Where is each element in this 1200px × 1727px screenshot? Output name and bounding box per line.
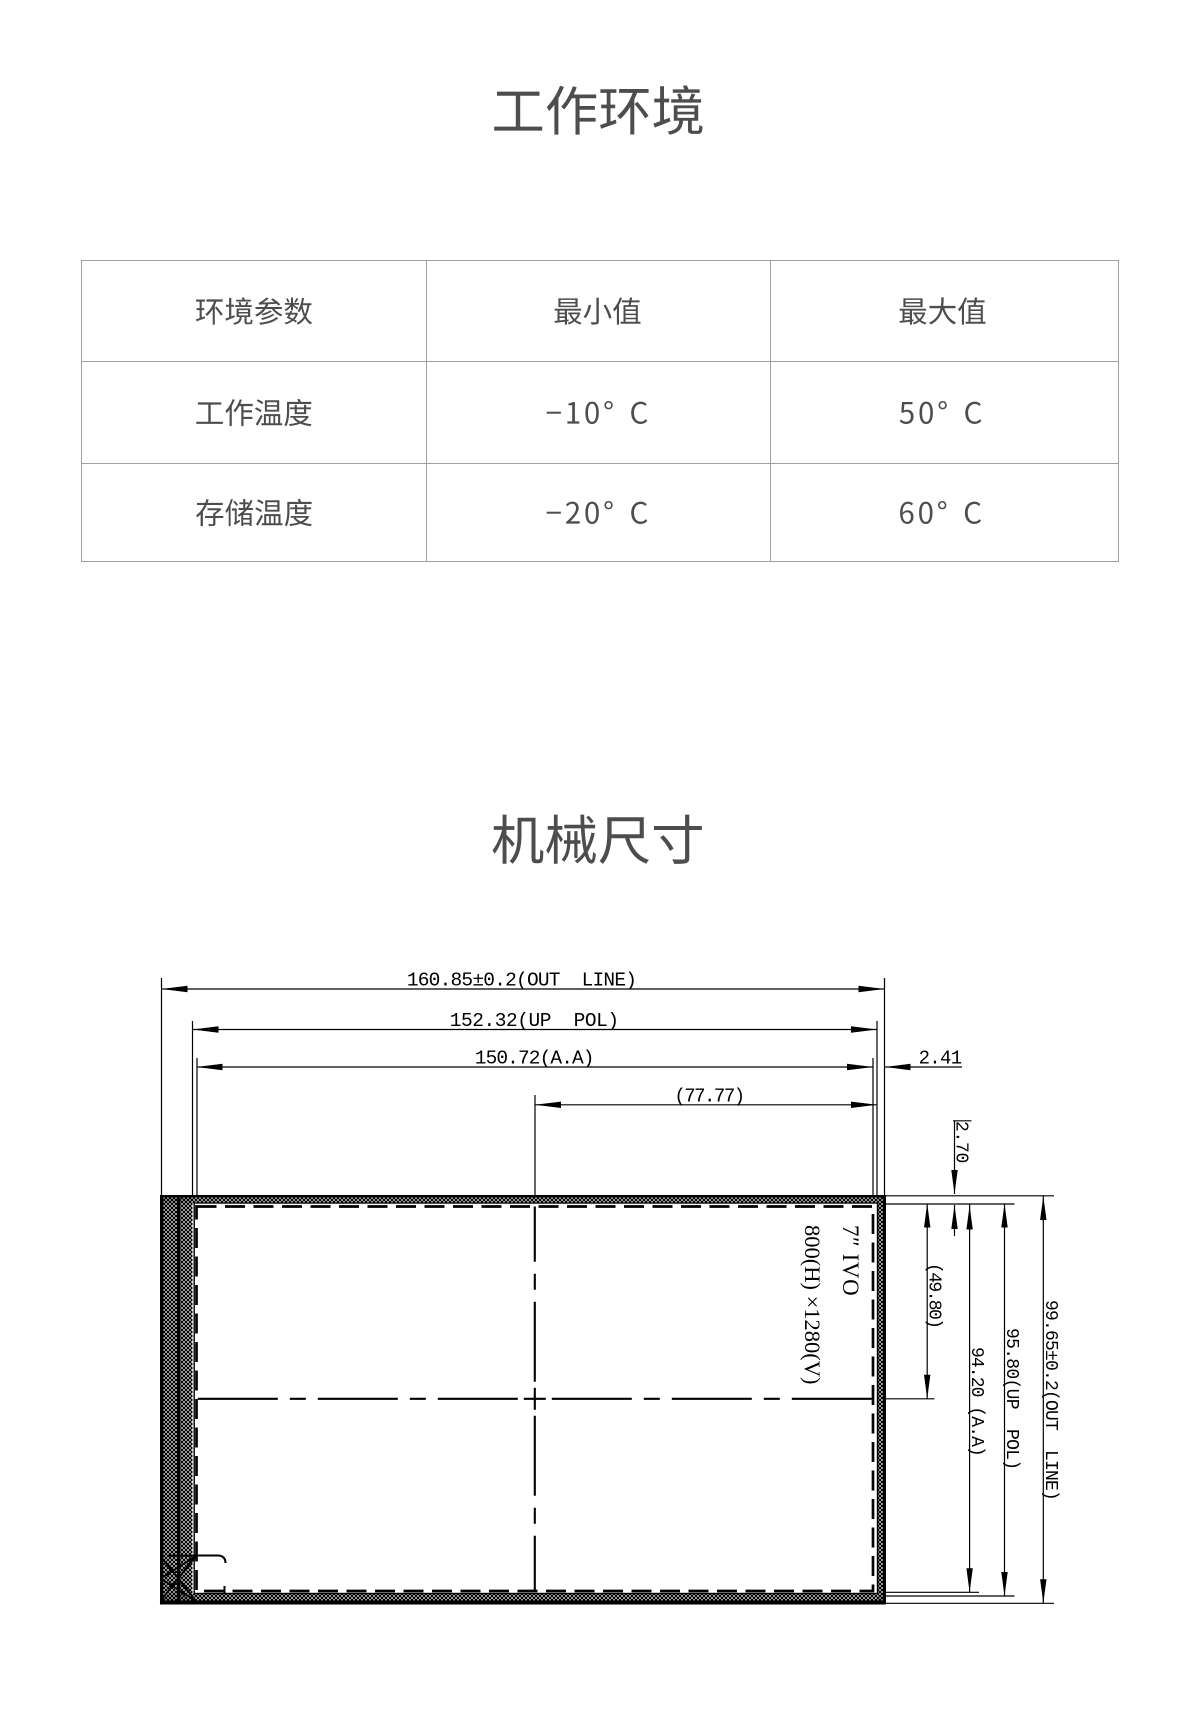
svg-text:150.72(A.A): 150.72(A.A) [475, 1048, 594, 1070]
svg-text:7″ IVO: 7″ IVO [838, 1225, 863, 1296]
svg-text:(49.80): (49.80) [924, 1263, 944, 1327]
svg-text:800(H) ×1280(V): 800(H) ×1280(V) [800, 1225, 825, 1385]
svg-text:94.20 (A.A): 94.20 (A.A) [966, 1347, 986, 1456]
svg-text:99.65±0.2(OUT LINE): 99.65±0.2(OUT LINE) [1040, 1300, 1060, 1500]
svg-text:160.85±0.2(OUT LINE): 160.85±0.2(OUT LINE) [407, 970, 636, 992]
svg-text:95.80(UP POL): 95.80(UP POL) [1001, 1328, 1021, 1469]
svg-text:(77.77): (77.77) [674, 1086, 743, 1108]
svg-text:2.41: 2.41 [919, 1048, 962, 1070]
svg-text:2.70: 2.70 [951, 1121, 971, 1163]
svg-text:152.32(UP POL): 152.32(UP POL) [450, 1010, 619, 1032]
